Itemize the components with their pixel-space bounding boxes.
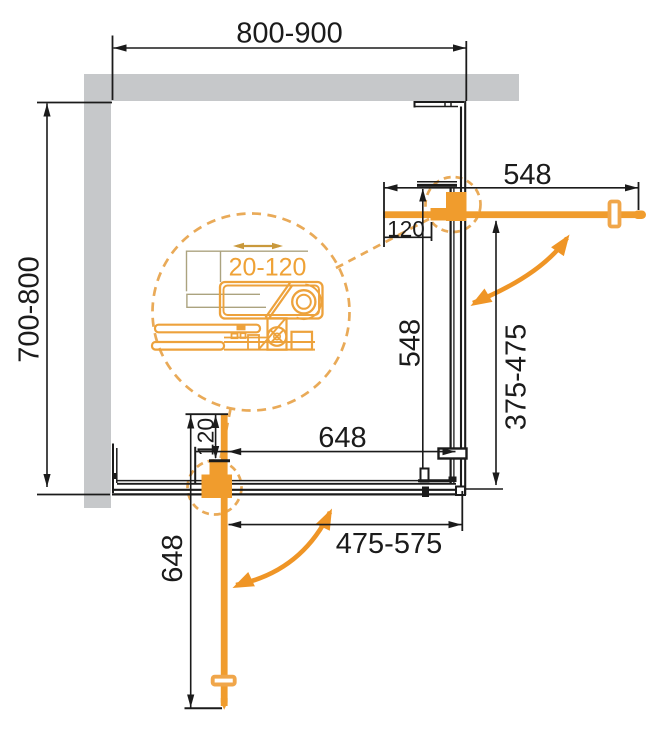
svg-text:120: 120 (193, 418, 219, 456)
svg-text:800-900: 800-900 (236, 18, 342, 50)
svg-text:475-575: 475-575 (336, 528, 442, 560)
svg-text:375-475: 375-475 (501, 324, 533, 430)
svg-text:548: 548 (503, 159, 551, 191)
svg-text:20-120: 20-120 (229, 254, 307, 282)
svg-text:648: 648 (318, 422, 366, 454)
svg-text:548: 548 (395, 319, 427, 367)
svg-text:648: 648 (157, 534, 189, 582)
svg-text:700-800: 700-800 (14, 256, 46, 362)
svg-text:120: 120 (387, 217, 425, 242)
